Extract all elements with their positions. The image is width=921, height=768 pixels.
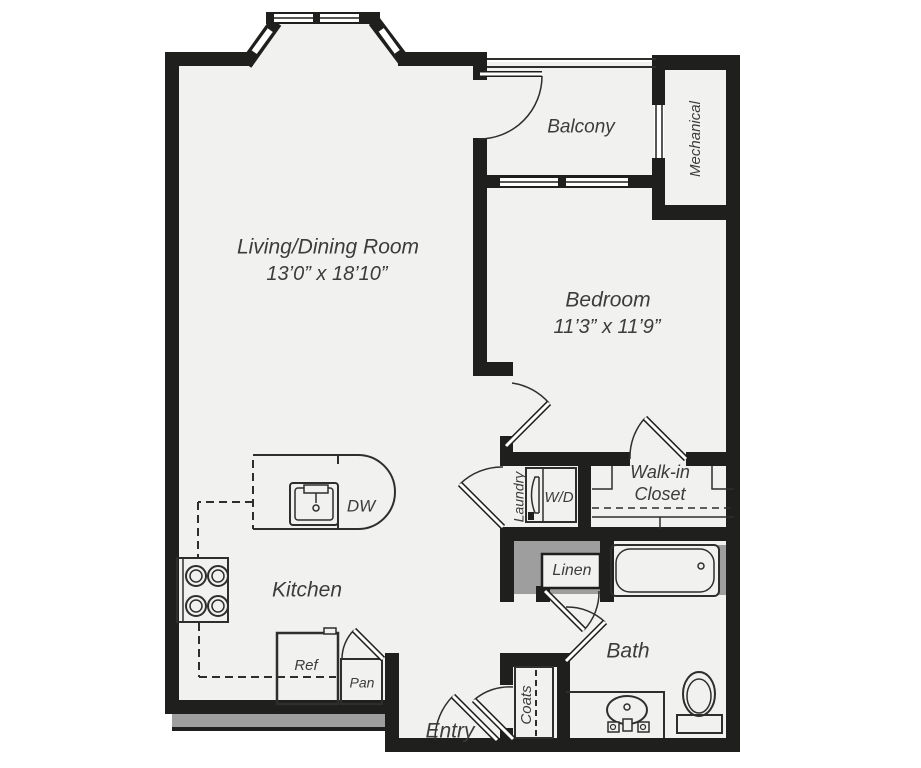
floor-plan: Living/Dining Room 13’0” x 18’10” Bedroo… [0, 0, 921, 768]
bath-label: Bath [606, 639, 649, 662]
walkin-closet-label-line1: Walk-in [630, 463, 690, 483]
mechanical-label: Mechanical [688, 101, 705, 177]
walkin-closet-label-line2: Closet [634, 485, 685, 505]
balcony-label: Balcony [547, 118, 615, 139]
bedroom-label: Bedroom [565, 288, 650, 311]
entry-label: Entry [425, 719, 474, 742]
refrigerator-label: Ref [294, 658, 317, 675]
living-dining-label: Living/Dining Room [237, 235, 419, 258]
linen-label: Linen [552, 562, 591, 580]
kitchen-label: Kitchen [272, 578, 342, 601]
kitchen-strip-edge [172, 727, 392, 731]
washer-dryer-label: W/D [544, 490, 573, 507]
floorplan-drawing [0, 0, 921, 768]
living-dining-dimensions: 13’0” x 18’10” [266, 263, 387, 285]
floor-areas [172, 16, 733, 745]
dishwasher-label: DW [347, 498, 375, 517]
pantry-label: Pan [350, 675, 375, 690]
laundry-label: Laundry [511, 472, 526, 523]
bedroom-dimensions: 11’3” x 11’9” [553, 316, 660, 338]
coats-label: Coats [519, 685, 536, 724]
